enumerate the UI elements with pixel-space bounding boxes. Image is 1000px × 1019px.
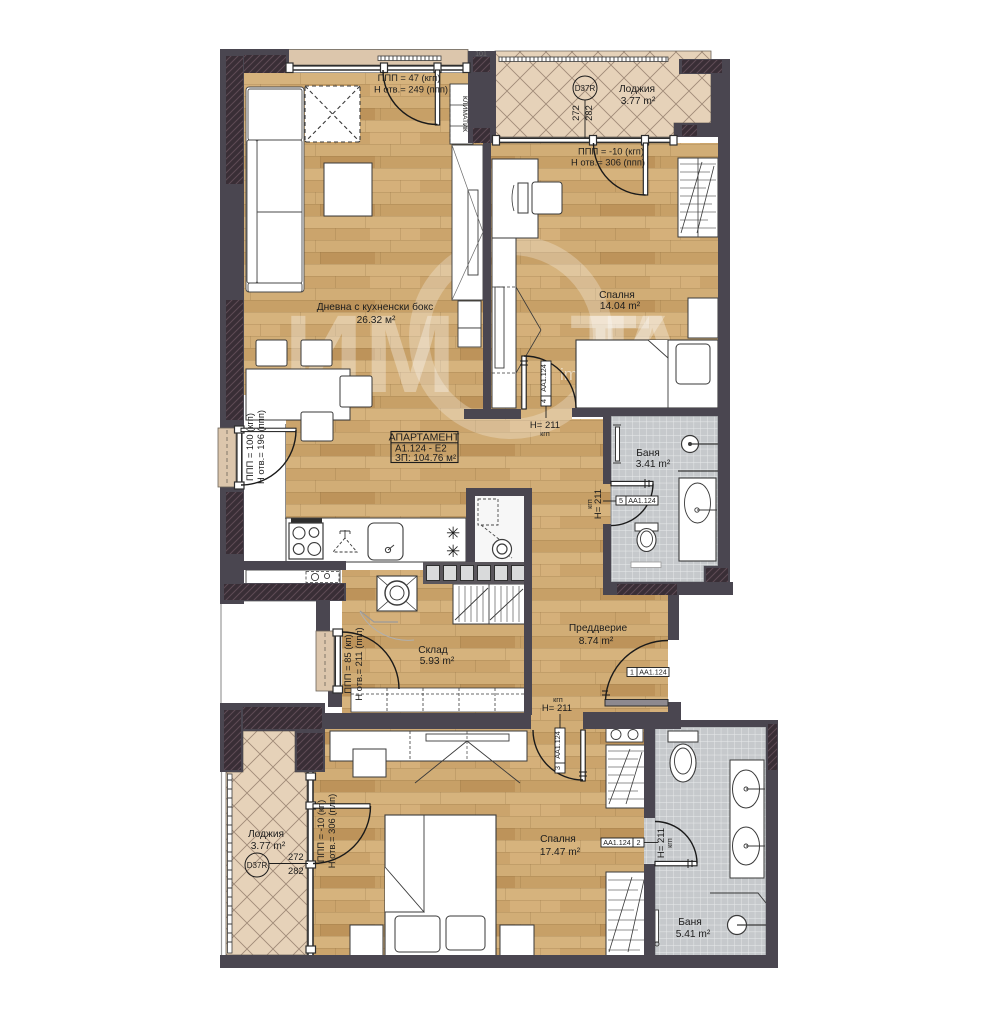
svg-text:5.41 m²: 5.41 m² [676, 929, 711, 940]
svg-text:Лоджия: Лоджия [248, 829, 284, 840]
svg-text:2: 2 [637, 838, 641, 847]
svg-text:Н= 211: Н= 211 [542, 703, 572, 714]
svg-text:АА1.124: АА1.124 [539, 364, 548, 392]
svg-text:Спалня: Спалня [540, 834, 576, 845]
svg-text:Н отв.= 306 (плп): Н отв.= 306 (плп) [326, 794, 337, 868]
svg-text:Н отв.= 211 (ппп): Н отв.= 211 (ппп) [353, 627, 364, 700]
svg-text:Дневна с кухненски бокс: Дневна с кухненски бокс [317, 301, 434, 313]
svg-text:5: 5 [619, 496, 623, 505]
svg-text:282: 282 [288, 865, 304, 876]
svg-text:ППП = 47 (кгп): ППП = 47 (кгп) [378, 72, 441, 83]
svg-text:Лоджия: Лоджия [619, 84, 655, 95]
svg-text:АА1.124: АА1.124 [628, 496, 656, 505]
svg-text:101: 101 [475, 51, 487, 58]
svg-text:282: 282 [583, 105, 594, 121]
svg-text:кгп: кгп [665, 838, 674, 848]
svg-text:Баня: Баня [678, 917, 702, 928]
svg-text:3.77 m²: 3.77 m² [621, 96, 656, 107]
svg-text:14.04 m²: 14.04 m² [600, 301, 641, 312]
svg-text:17.47 m²: 17.47 m² [540, 847, 581, 858]
svg-text:5.93 m²: 5.93 m² [420, 656, 455, 667]
svg-text:АА1.124: АА1.124 [553, 731, 562, 759]
svg-text:КЛИМАТИК: КЛИМАТИК [461, 96, 468, 132]
svg-text:272: 272 [288, 851, 304, 862]
svg-text:ППП = -10 (кп): ППП = -10 (кп) [315, 800, 326, 862]
svg-text:ЗП: 104.76 м²: ЗП: 104.76 м² [395, 453, 457, 464]
svg-text:АПАРТАМЕНТ: АПАРТАМЕНТ [389, 432, 460, 444]
svg-text:Преддверие: Преддверие [569, 623, 628, 634]
svg-text:ППП = 85 (кп): ППП = 85 (кп) [342, 634, 353, 693]
svg-text:АА1.124: АА1.124 [603, 838, 631, 847]
svg-text:ППП = -10 (кгп): ППП = -10 (кгп) [578, 146, 644, 157]
svg-text:D37R: D37R [247, 861, 268, 870]
svg-text:Н отв.= 306 (ппп): Н отв.= 306 (ппп) [571, 157, 645, 168]
svg-text:Н отв.= 249 (ппп): Н отв.= 249 (ппп) [374, 84, 448, 95]
svg-text:8.74 m²: 8.74 m² [579, 636, 614, 647]
svg-text:272: 272 [570, 105, 581, 121]
svg-text:26.32 м²: 26.32 м² [357, 315, 396, 326]
svg-text:3: 3 [553, 766, 562, 770]
svg-text:3.41 m²: 3.41 m² [636, 459, 671, 470]
svg-text:Склад: Склад [418, 645, 448, 656]
svg-text:Спалня: Спалня [599, 290, 635, 301]
svg-text:4: 4 [539, 399, 548, 403]
svg-text:3.77 m²: 3.77 m² [251, 841, 286, 852]
svg-text:✳: ✳ [446, 524, 460, 543]
svg-text:D37R: D37R [575, 84, 596, 93]
svg-text:АА1.124: АА1.124 [639, 668, 667, 677]
svg-text:1: 1 [630, 668, 634, 677]
svg-text:ППП = 100 (кгп): ППП = 100 (кгп) [244, 413, 255, 481]
svg-text:Н= 211: Н= 211 [593, 489, 604, 519]
svg-text:Баня: Баня [636, 448, 660, 459]
svg-text:кгп: кгп [540, 429, 550, 438]
svg-text:✳: ✳ [446, 542, 460, 561]
svg-text:Н отв.= 196 (ппп): Н отв.= 196 (ппп) [255, 410, 266, 484]
